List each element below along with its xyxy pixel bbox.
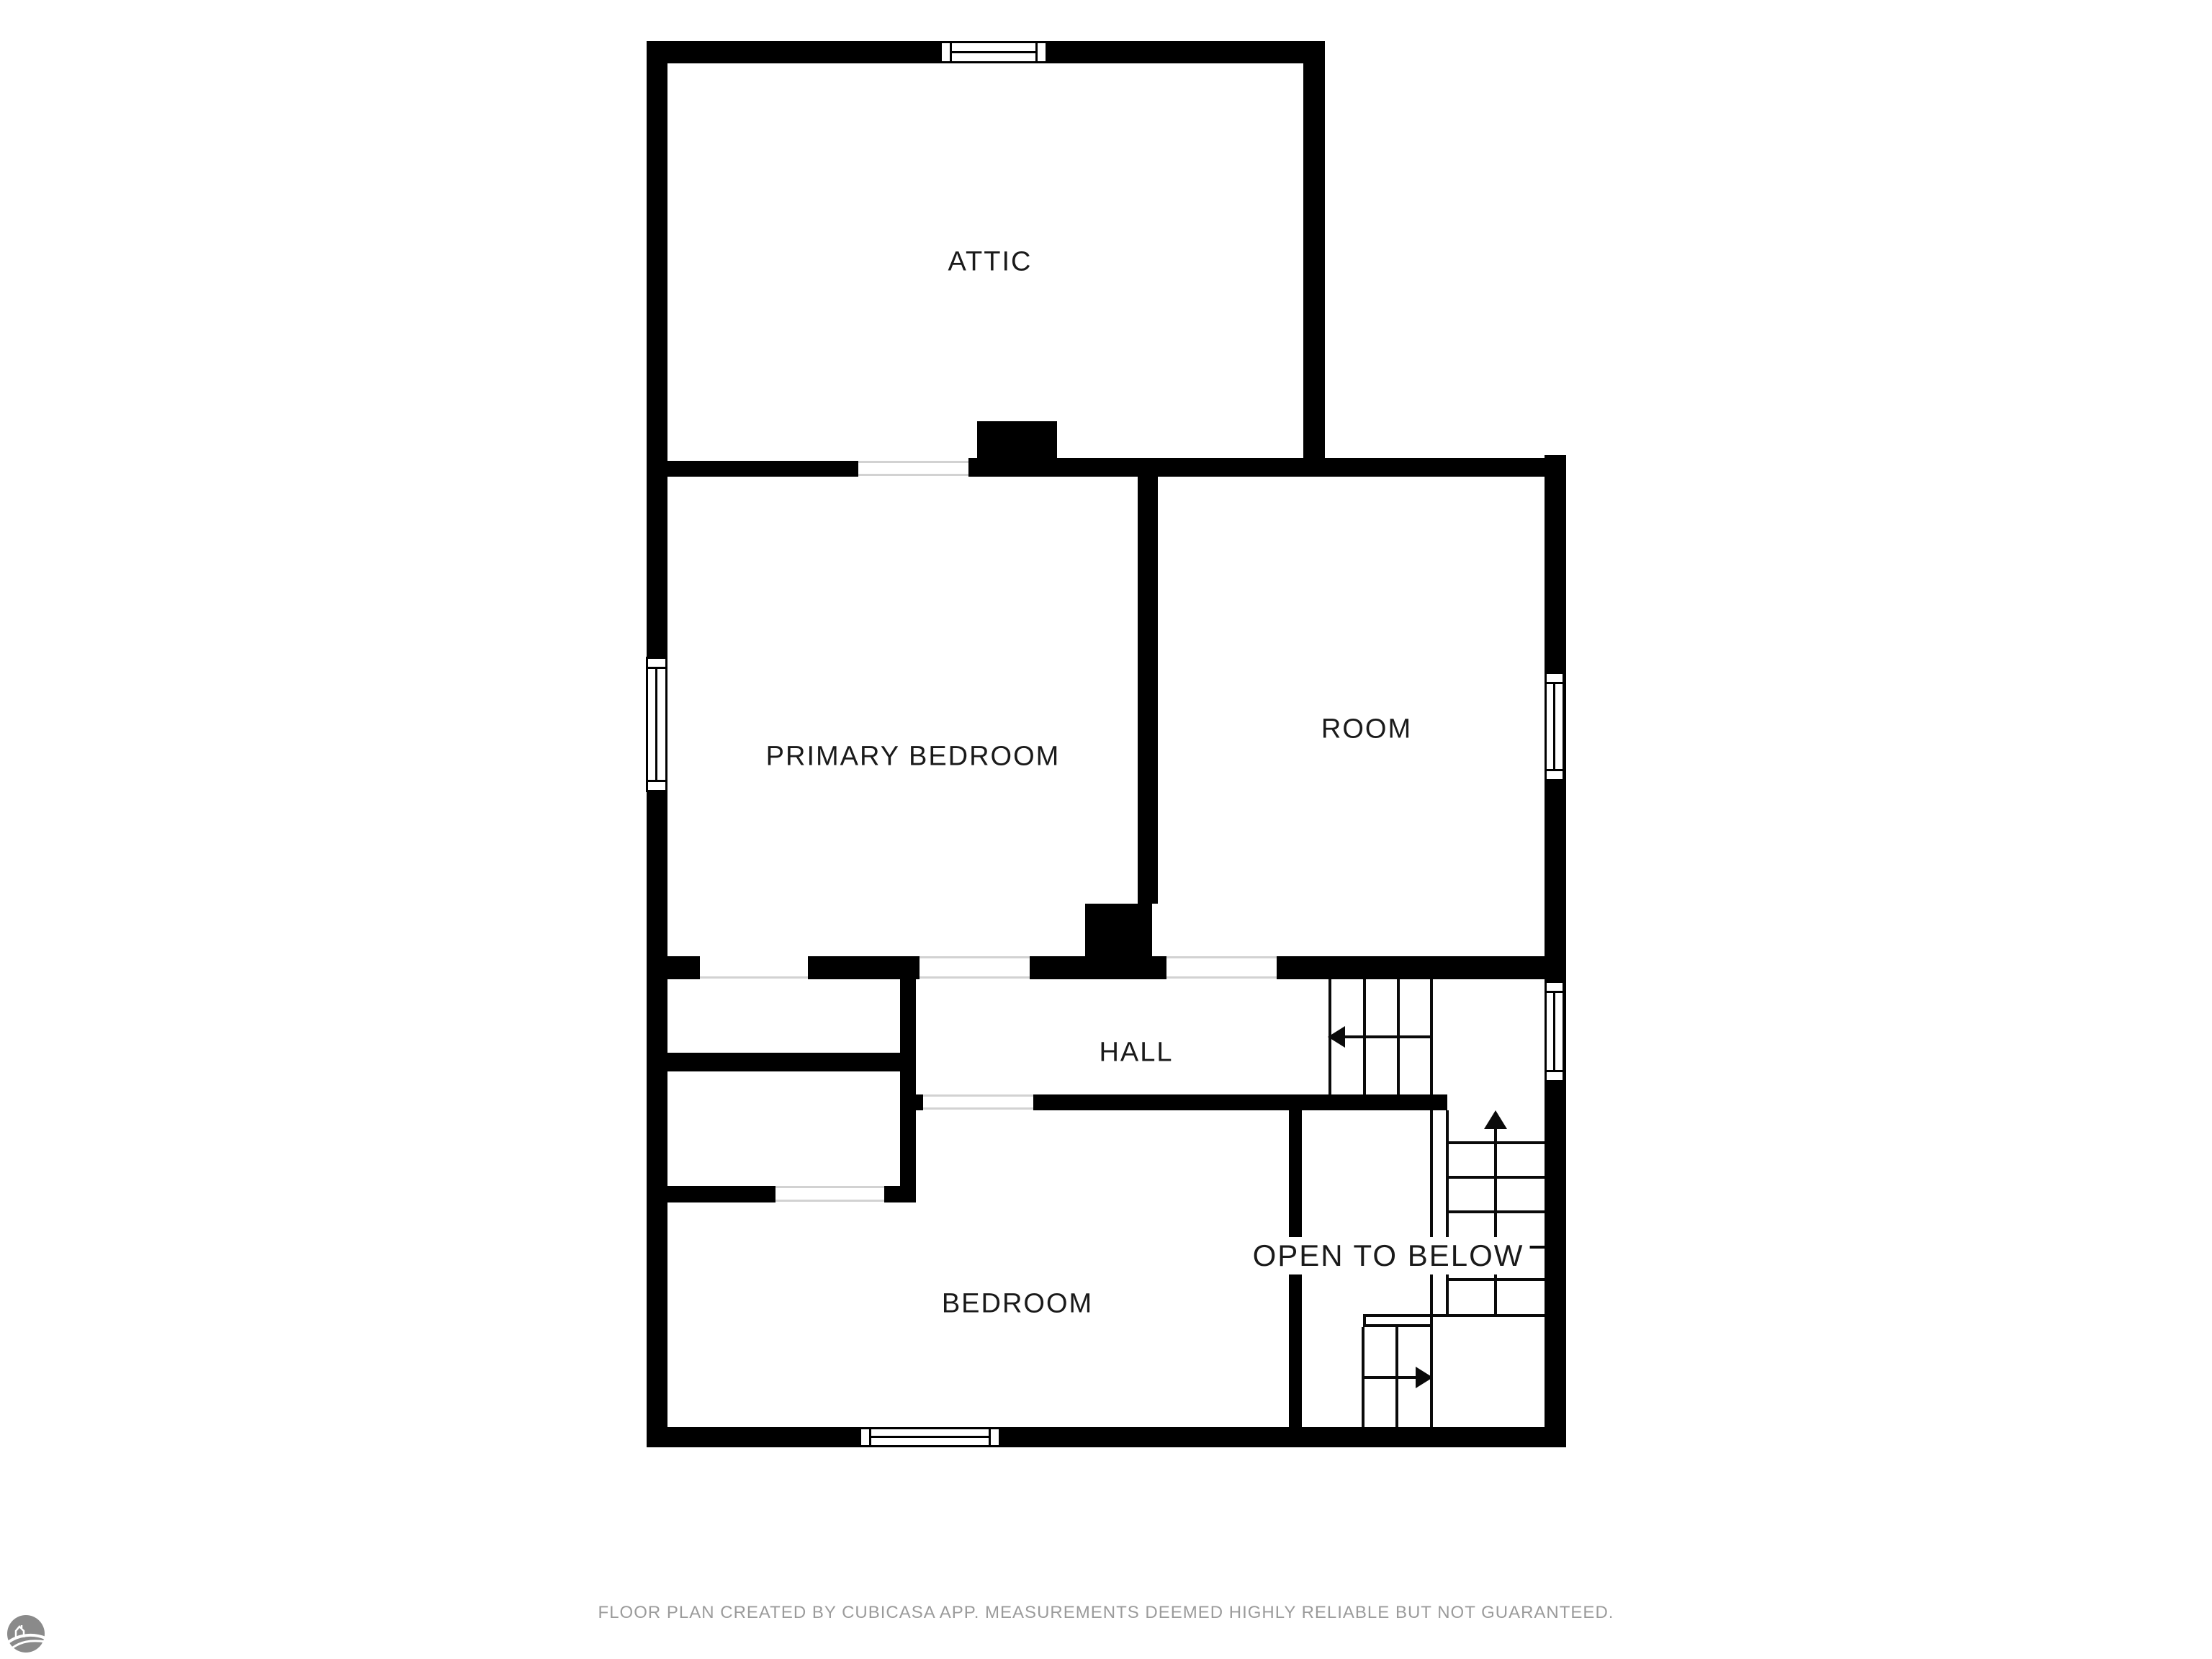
window <box>859 1427 1001 1447</box>
wall <box>667 1186 775 1202</box>
window <box>1545 672 1565 781</box>
window-mullion <box>1553 992 1555 1071</box>
wall <box>900 979 916 1202</box>
wall <box>1545 455 1566 1447</box>
disclaimer-text: FLOOR PLAN CREATED BY CUBICASA APP. MEAS… <box>598 1603 1614 1623</box>
door-opening <box>923 1094 1033 1097</box>
room-label-room: ROOM <box>1321 714 1412 745</box>
door-opening <box>858 474 968 476</box>
window-mullion <box>871 1436 989 1438</box>
stairwell-wall-line <box>1363 1314 1366 1327</box>
window <box>940 41 1048 63</box>
cubicasa-logo-icon <box>7 1615 46 1654</box>
door-opening <box>920 956 1030 958</box>
stairwell-wall-line <box>1430 1110 1433 1327</box>
door-opening <box>858 461 968 463</box>
stairwell-wall-line <box>1363 1314 1545 1317</box>
wall <box>968 458 1566 477</box>
wall <box>1033 1094 1447 1110</box>
room-label-primary-bedroom: PRIMARY BEDROOM <box>766 742 1061 773</box>
door-opening <box>775 1200 884 1202</box>
stair-direction-line <box>1364 1376 1417 1379</box>
room-label-bedroom: BEDROOM <box>942 1289 1093 1320</box>
window-mullion <box>655 668 657 781</box>
window-mullion <box>1553 683 1555 770</box>
wall <box>913 1094 923 1110</box>
door-opening <box>923 1107 1033 1110</box>
wall <box>667 461 858 477</box>
door-opening <box>1166 956 1277 958</box>
door-opening <box>920 976 1030 979</box>
door-opening <box>700 976 808 979</box>
wall <box>1030 956 1166 979</box>
wall <box>808 956 920 979</box>
door-opening <box>1166 976 1277 979</box>
chimney-block <box>977 421 1057 477</box>
room-label-open-to-below: OPEN TO BELOW <box>1247 1237 1530 1274</box>
wall <box>884 1186 916 1202</box>
wall <box>1138 477 1158 904</box>
stair-direction-line <box>1494 1128 1497 1314</box>
window <box>646 657 667 792</box>
window <box>1545 981 1565 1082</box>
wall <box>1303 41 1325 477</box>
room-label-hall: HALL <box>1099 1038 1173 1069</box>
stair-arrow-left-icon <box>1328 1026 1345 1048</box>
wall <box>667 1053 916 1071</box>
wall <box>1277 956 1545 979</box>
stair-arrow-up-icon <box>1484 1110 1507 1129</box>
wall <box>647 1427 1566 1447</box>
room-label-attic: ATTIC <box>948 247 1033 278</box>
wall <box>667 956 700 979</box>
window-mullion <box>951 51 1036 53</box>
stair-direction-line <box>1344 1035 1431 1038</box>
floor-plan-canvas: ATTIC PRIMARY BEDROOM ROOM HALL OPEN TO … <box>0 0 2212 1659</box>
stair-arrow-right-icon <box>1416 1367 1433 1388</box>
door-opening <box>775 1186 884 1188</box>
